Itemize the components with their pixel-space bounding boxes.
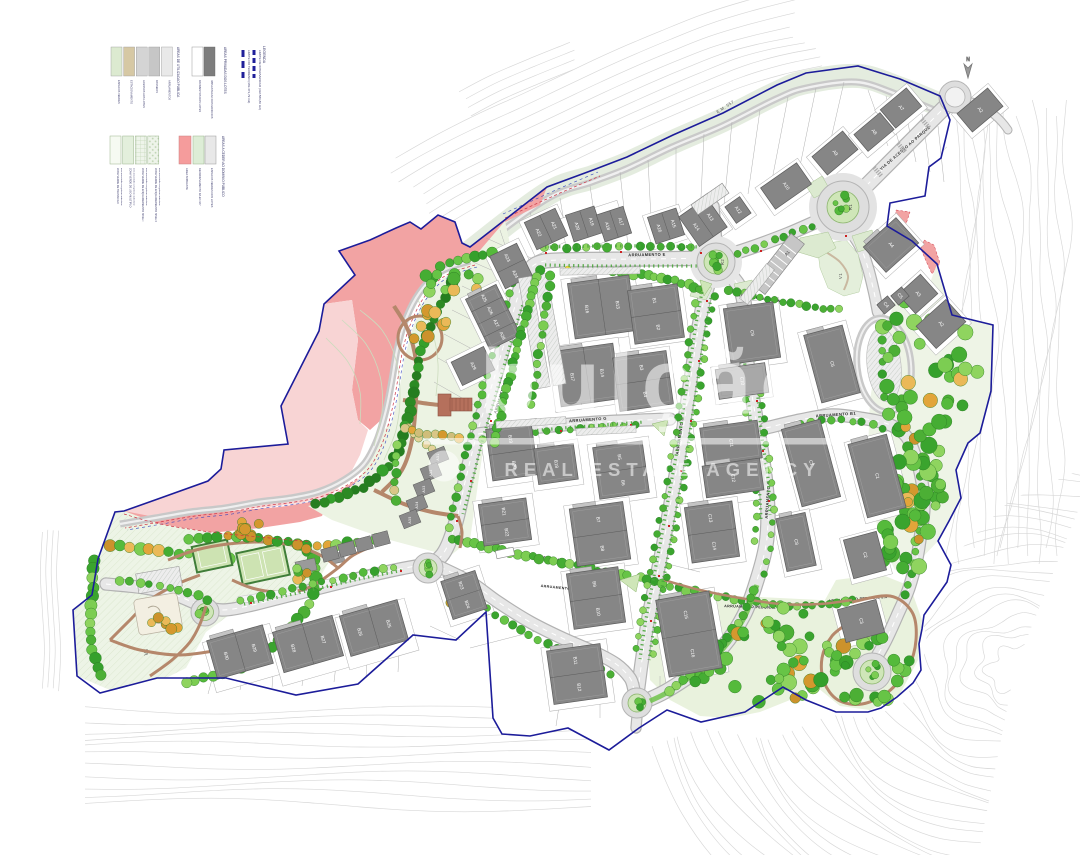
svg-text:A33: A33 <box>422 485 426 492</box>
svg-text:R1: R1 <box>848 204 853 210</box>
svg-text:LIMITE DE INTERVENCAO (332.586: LIMITE DE INTERVENCAO (332.586,86 m2) <box>258 50 262 110</box>
svg-text:IMPLANTACAO DOS EDIFICIOS: IMPLANTACAO DOS EDIFICIOS <box>210 80 214 119</box>
svg-text:AREAS DE UTILIZACAO PUBLICA: AREAS DE UTILIZACAO PUBLICA <box>176 47 180 98</box>
svg-text:ESPACOS VERDES DOS LOTES: ESPACOS VERDES DOS LOTES <box>210 168 214 208</box>
svg-text:ARRUAMENTOS: ARRUAMENTOS <box>167 80 171 100</box>
svg-text:LIMITE DO TERRENO (383.473,79: LIMITE DO TERRENO (383.473,79 m2) <box>247 50 251 103</box>
svg-text:PASSEIOS: PASSEIOS <box>155 80 159 93</box>
svg-text:REAL ESTATE AGENCY: REAL ESTATE AGENCY <box>504 459 821 480</box>
svg-text:area associada a vegetacao aut: area associada a vegetacao autoctone <box>133 168 136 206</box>
svg-text:PAVIMENTOS DOS LOTES: PAVIMENTOS DOS LOTES <box>198 80 202 112</box>
svg-text:area associada a vegetacao aut: area associada a vegetacao autoctone <box>145 168 148 206</box>
svg-text:REORDENAMENTO DA EN 107: REORDENAMENTO DA EN 107 <box>198 168 202 206</box>
svg-text:A35: A35 <box>408 516 412 523</box>
svg-text:ACESSOS AOS LOTES: ACESSOS AOS LOTES <box>142 80 146 108</box>
svg-text:ARRUAMENTO E: ARRUAMENTO E <box>628 252 665 258</box>
svg-text:ESPACOS VERDES: ESPACOS VERDES <box>117 80 121 104</box>
svg-text:AREAS PRIVADAS DOS LOTES: AREAS PRIVADAS DOS LOTES <box>223 47 227 94</box>
svg-text:AREAS A CEDER AO DOMINIO PUBLI: AREAS A CEDER AO DOMINIO PUBLICO <box>221 136 225 197</box>
svg-text:AREA SOBRANTE: AREA SOBRANTE <box>185 168 189 190</box>
svg-text:area associada a vegetacao aut: area associada a vegetacao autoctone <box>158 168 161 206</box>
svg-text:ZONA VERDE DE USO MULTIPLO: ZONA VERDE DE USO MULTIPLO <box>129 168 132 207</box>
svg-text:R2: R2 <box>720 259 725 265</box>
svg-text:ZONA VERDE DE ENQUADRAMENTO NI: ZONA VERDE DE ENQUADRAMENTO NIVEL II <box>154 168 157 222</box>
svg-text:V1: V1 <box>838 273 843 279</box>
svg-text:area associada a vegetacao aut: area associada a vegetacao autoctone <box>120 168 123 206</box>
svg-text:ZONA VERDE DE ENQUADRAMENTO NI: ZONA VERDE DE ENQUADRAMENTO NIVEL I <box>141 168 144 222</box>
svg-text:N: N <box>966 57 970 63</box>
svg-text:A34: A34 <box>415 501 419 508</box>
svg-text:ZONA VERDE DE TRANSICAO: ZONA VERDE DE TRANSICAO <box>116 168 119 204</box>
svg-text:ESTACIONAMENTO: ESTACIONAMENTO <box>130 80 134 104</box>
svg-text:bulção: bulção <box>480 331 824 433</box>
